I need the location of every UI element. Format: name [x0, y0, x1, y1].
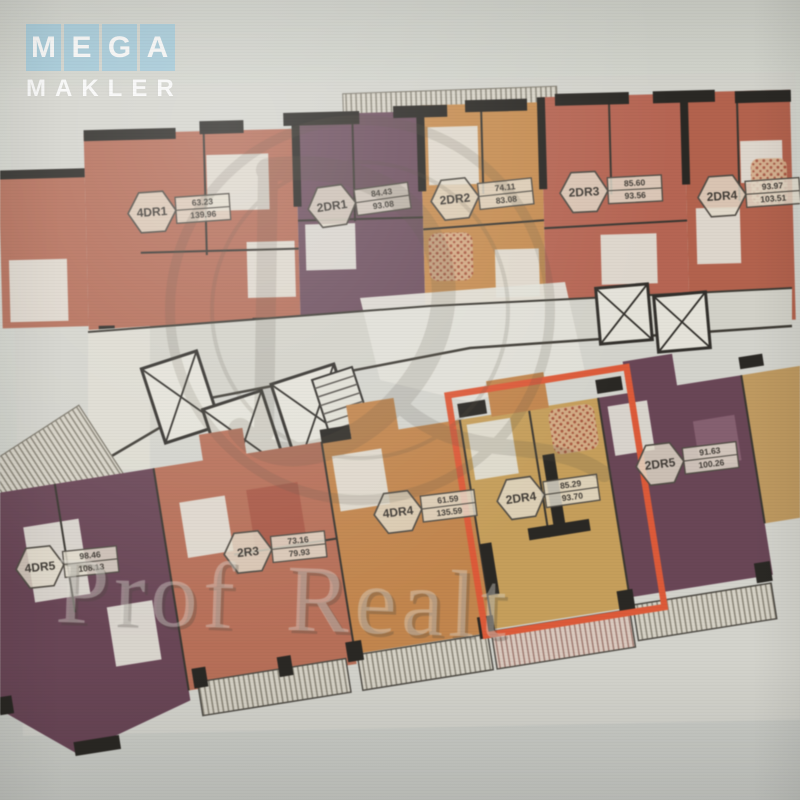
logo-tiles: M E G A [26, 24, 183, 71]
svg-text:93.97: 93.97 [761, 180, 783, 191]
floor-plan-svg: 4DR1 63.23 139.96 2DR1 84.43 93.08 2DR2 … [0, 0, 800, 800]
svg-text:85.60: 85.60 [624, 177, 646, 188]
svg-text:103.51: 103.51 [760, 193, 787, 205]
logo-letter: A [147, 31, 169, 65]
agency-watermark: Prof Realt Prof Realt [54, 537, 516, 662]
logo-letter: E [71, 31, 91, 65]
logo-subtitle: MAKLER [26, 75, 183, 103]
logo-tile-m: M [26, 24, 61, 71]
svg-text:93.56: 93.56 [624, 190, 646, 201]
logo-tile-a: A [140, 24, 175, 71]
floor-plan-image: 4DR1 63.23 139.96 2DR1 84.43 93.08 2DR2 … [0, 0, 800, 800]
logo-tile-e: E [64, 24, 99, 71]
logo-letter: G [108, 31, 131, 65]
svg-text:4DR1: 4DR1 [136, 204, 168, 220]
svg-text:Prof Realt: Prof Realt [54, 537, 513, 659]
logo-letter: M [31, 31, 56, 65]
logo-tile-g: G [102, 24, 137, 71]
photo-of-floor-plan: 4DR1 63.23 139.96 2DR1 84.43 93.08 2DR2 … [0, 0, 800, 800]
svg-text:2DR4: 2DR4 [706, 188, 738, 204]
svg-text:2DR3: 2DR3 [568, 184, 600, 200]
mega-makler-logo: M E G A MAKLER [26, 24, 183, 103]
